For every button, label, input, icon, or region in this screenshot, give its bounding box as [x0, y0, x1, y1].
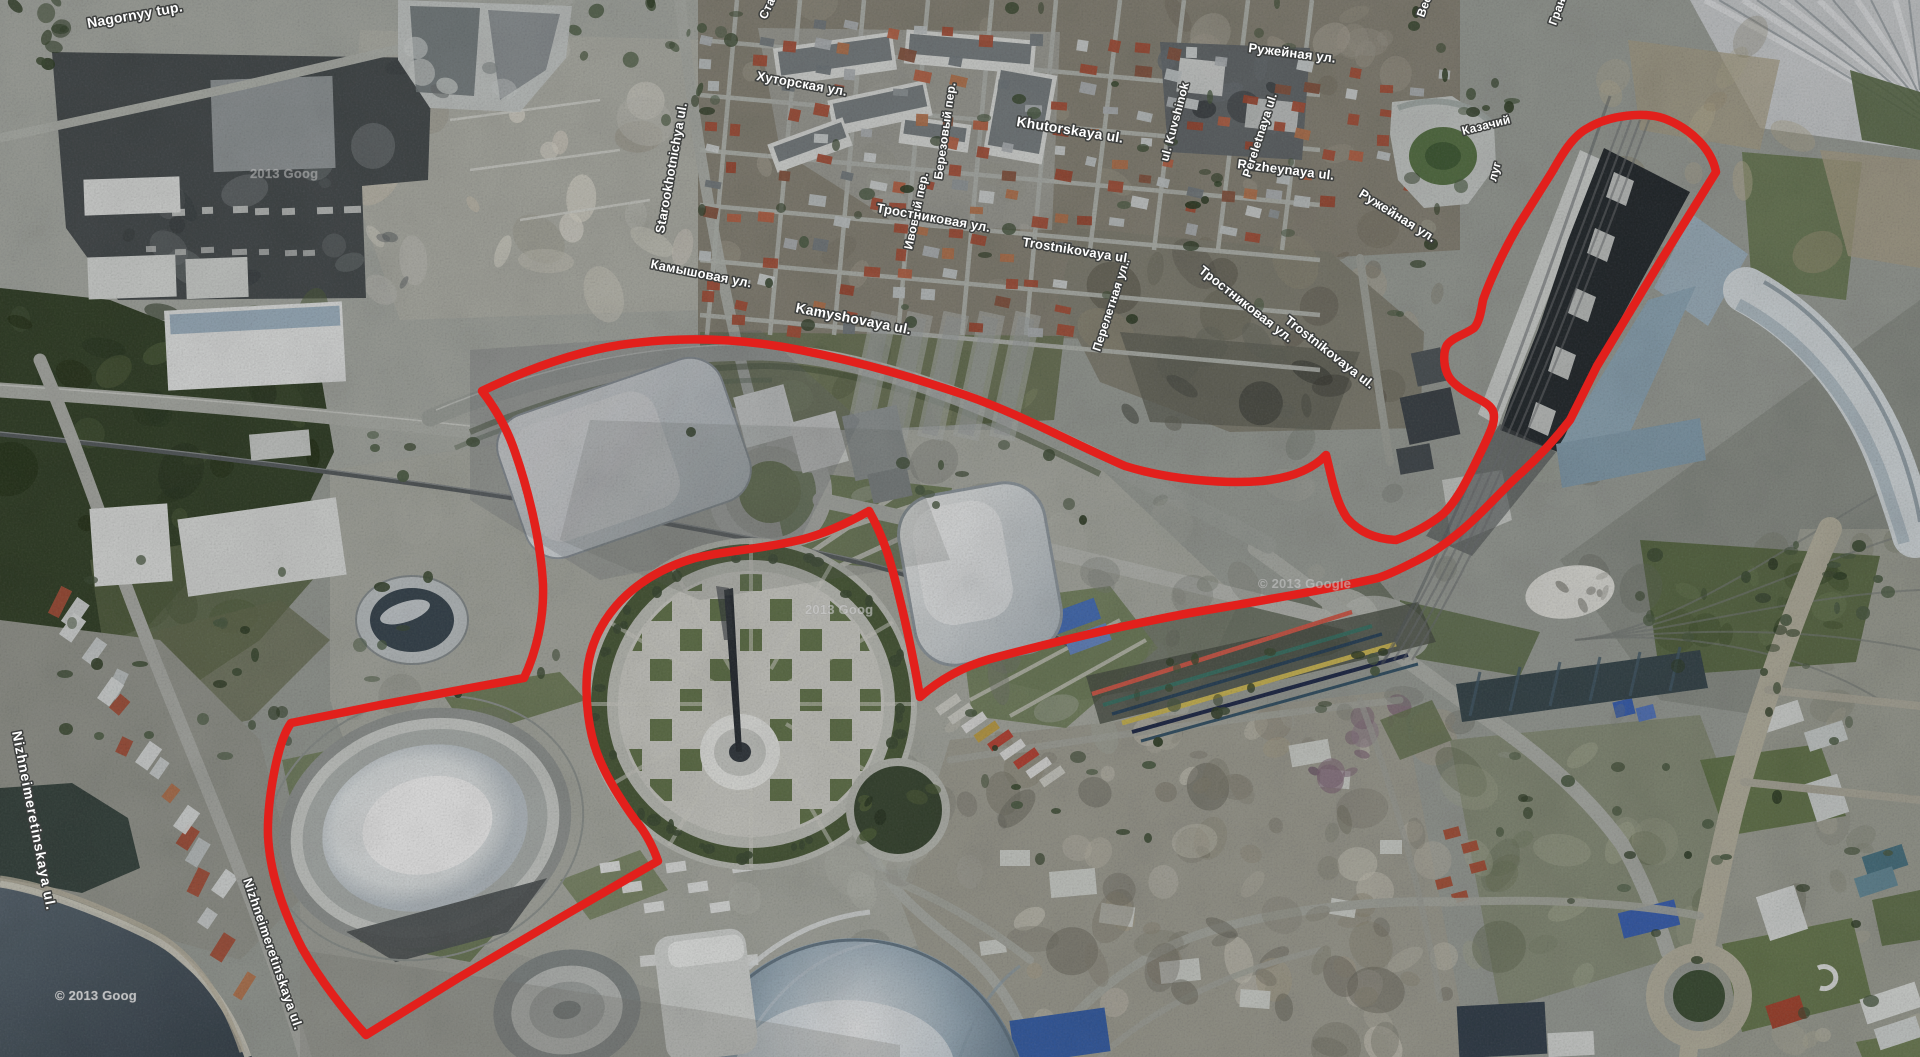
svg-text:2013 Goog: 2013 Goog: [805, 602, 873, 617]
svg-text:© 2013 Goog: © 2013 Goog: [55, 988, 137, 1003]
svg-text:2013 Goog: 2013 Goog: [250, 166, 318, 181]
svg-text:© 2013 Google: © 2013 Google: [1258, 576, 1351, 591]
